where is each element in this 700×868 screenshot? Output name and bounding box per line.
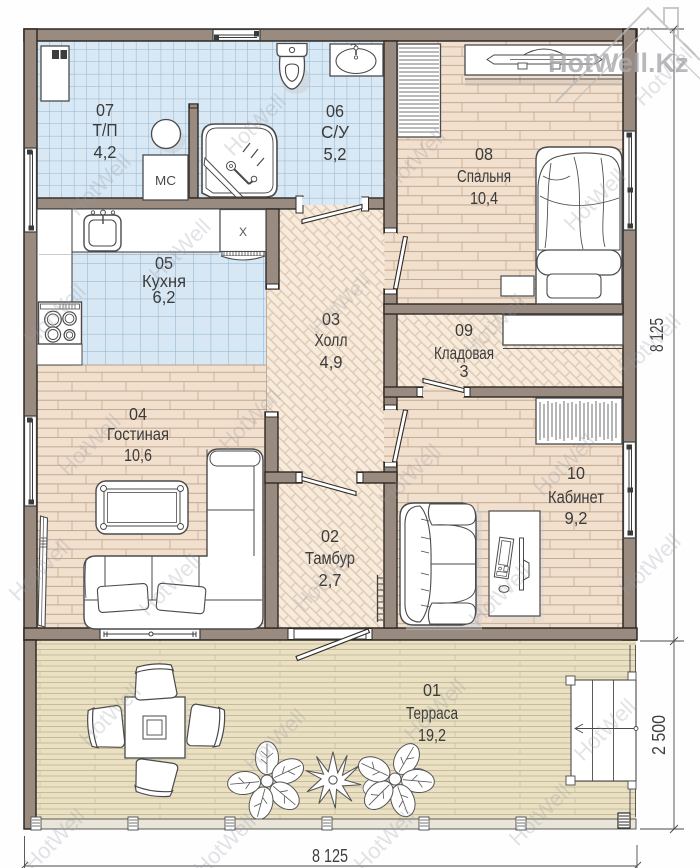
svg-text:Спальня: Спальня bbox=[457, 166, 511, 186]
svg-text:02: 02 bbox=[321, 526, 339, 546]
svg-text:10,6: 10,6 bbox=[124, 445, 152, 465]
svg-text:X: X bbox=[239, 225, 247, 239]
svg-text:9,2: 9,2 bbox=[565, 508, 588, 528]
svg-text:3: 3 bbox=[460, 361, 469, 381]
svg-text:10,4: 10,4 bbox=[470, 188, 498, 208]
svg-text:07: 07 bbox=[96, 100, 114, 120]
svg-text:06: 06 bbox=[326, 101, 344, 121]
svg-text:6,2: 6,2 bbox=[153, 287, 176, 307]
svg-text:2 500: 2 500 bbox=[649, 715, 669, 755]
svg-text:МС: МС bbox=[155, 174, 176, 188]
svg-text:Т/П: Т/П bbox=[93, 120, 118, 140]
svg-text:04: 04 bbox=[129, 404, 147, 424]
svg-text:08: 08 bbox=[475, 144, 493, 164]
svg-text:4,9: 4,9 bbox=[320, 352, 343, 372]
svg-text:8 125: 8 125 bbox=[312, 846, 348, 866]
svg-text:5,2: 5,2 bbox=[324, 144, 347, 164]
svg-text:С/У: С/У bbox=[321, 122, 350, 142]
